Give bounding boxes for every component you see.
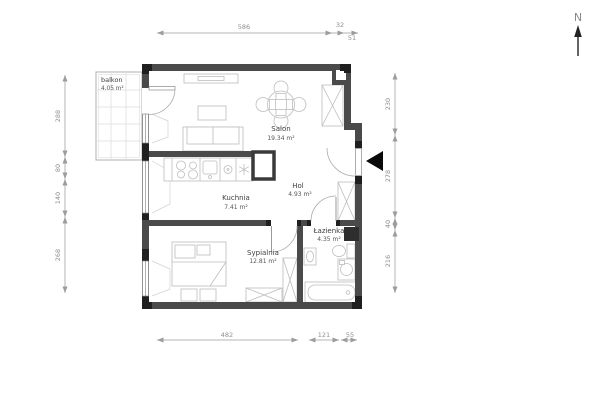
room-label-kuchnia: Kuchnia [222,194,250,202]
dim-right-230: 230 [384,98,392,110]
room-label-lazienka: Łazienka [313,227,345,235]
washbasin [304,248,316,265]
entrance-marker-icon [366,151,383,171]
dim-bottom-55: 55 [346,331,354,339]
kitchen-window [143,161,149,213]
room-area-hol: 4.93 m² [288,191,312,198]
dimension-chain-left: 288 80 140 268 [54,75,65,293]
room-area-salon: 19.34 m² [267,135,295,142]
north-arrow: N [574,11,582,56]
bedside-tables [181,289,216,301]
bed [172,242,226,286]
balcony-door [149,87,175,115]
bathroom-door [311,196,336,221]
dim-bottom-482: 482 [221,331,233,339]
room-area-lazienka: 4.35 m² [317,236,341,243]
room-area-kuchnia: 7.41 m² [224,204,248,211]
room-label-sypialnia: Sypialnia [247,249,279,257]
room-area-balkon: 4.05 m² [101,85,124,92]
dim-left-288: 288 [54,110,62,122]
dim-left-80: 80 [54,164,62,172]
salon-sideboard [184,74,238,83]
washing-machine [338,259,355,280]
windows [142,88,149,296]
salon-wardrobe [322,85,343,126]
kitchen-counter [164,158,253,181]
salon-window [143,114,149,143]
salon-dining-set [256,81,306,128]
dim-bottom-121: 121 [318,331,330,339]
window-reveals [152,114,170,296]
bedroom-wardrobe-tall [283,258,297,302]
utility-shaft [253,152,274,179]
dim-right-216: 216 [384,255,392,267]
toilet [333,244,356,258]
room-area-sypialnia: 12.81 m² [249,258,277,265]
floor-plan-canvas: 586 32 51 288 80 140 268 230 278 40 216 … [0,0,600,418]
dim-right-40: 40 [384,220,392,228]
salon-sofa [183,127,243,151]
room-label-balkon: balkon [101,76,123,84]
floor-plan-page: 586 32 51 288 80 140 268 230 278 40 216 … [0,0,600,418]
dim-top-51: 51 [348,34,356,42]
balcony-door-opening [142,88,149,114]
entrance-door [327,148,362,176]
hol-wardrobe [338,182,355,221]
bedroom-window [143,261,149,296]
dim-right-278: 278 [384,170,392,182]
room-label-salon: Salon [271,125,290,133]
dimension-chain-bottom: 482 121 55 [157,331,357,340]
dim-left-140: 140 [54,192,62,204]
north-arrow-head-icon [574,25,582,37]
north-label: N [574,11,582,24]
room-label-hol: Hol [292,182,304,190]
dim-top-586: 586 [238,23,250,31]
dim-top-32: 32 [336,21,344,29]
salon-coffee-table [198,106,226,120]
dim-left-268: 268 [54,249,62,261]
dimension-chain-right: 230 278 40 216 [384,73,395,293]
bathtub [305,282,358,303]
dimension-chain-top: 586 32 51 [157,21,358,42]
hob-icon [224,166,232,174]
bathroom-shaft [344,227,359,241]
bedroom-wardrobe-low [246,288,282,302]
